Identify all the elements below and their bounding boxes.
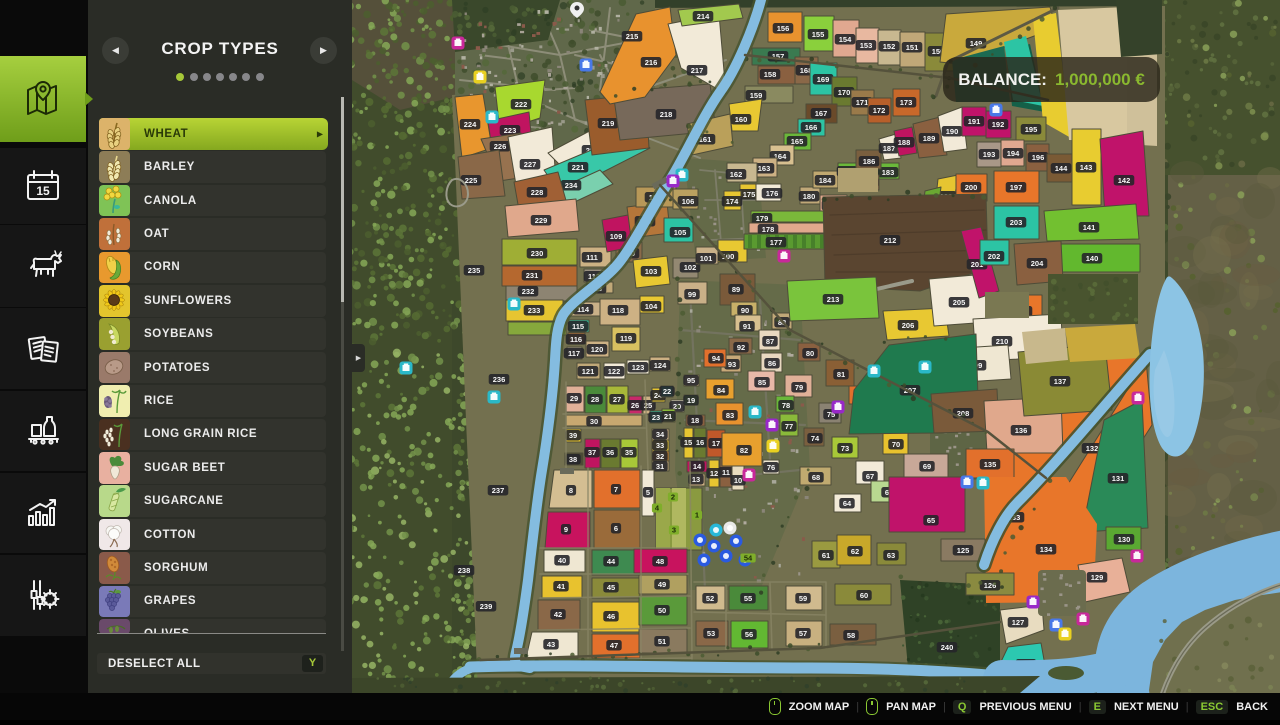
svg-text:194: 194 [1007,149,1020,158]
svg-text:177: 177 [770,238,783,247]
svg-text:15: 15 [684,438,692,447]
svg-text:124: 124 [654,361,667,370]
svg-text:55: 55 [744,594,752,603]
svg-text:73: 73 [841,444,849,453]
svg-text:240: 240 [941,643,954,652]
svg-text:129: 129 [1091,573,1104,582]
svg-text:143: 143 [1080,163,1093,172]
svg-text:221: 221 [572,163,585,172]
svg-text:13: 13 [692,475,700,484]
svg-text:134: 134 [1040,545,1053,554]
svg-text:37: 37 [588,448,596,457]
svg-text:170: 170 [838,88,851,97]
svg-text:28: 28 [591,395,599,404]
svg-text:43: 43 [547,640,555,649]
svg-text:224: 224 [464,120,477,129]
svg-text:94: 94 [712,354,721,363]
svg-text:38: 38 [569,455,577,464]
svg-text:44: 44 [607,557,616,566]
svg-text:215: 215 [626,32,639,41]
svg-text:176: 176 [766,189,779,198]
svg-text:169: 169 [817,75,830,84]
svg-text:2: 2 [671,493,675,502]
svg-text:195: 195 [1025,125,1038,134]
svg-text:105: 105 [674,228,687,237]
svg-text:36: 36 [606,448,614,457]
svg-text:219: 219 [602,119,615,128]
svg-text:121: 121 [582,367,595,376]
svg-text:99: 99 [688,290,696,299]
svg-text:47: 47 [610,641,618,650]
svg-text:117: 117 [568,349,580,358]
svg-text:163: 163 [758,164,771,173]
svg-text:46: 46 [607,612,615,621]
svg-text:51: 51 [658,637,666,646]
svg-text:26: 26 [631,401,639,410]
svg-text:203: 203 [1010,218,1023,227]
svg-text:118: 118 [612,306,624,315]
svg-text:127: 127 [1012,618,1025,627]
svg-text:32: 32 [656,452,664,461]
svg-text:56: 56 [745,630,753,639]
svg-text:102: 102 [684,263,697,272]
svg-text:63: 63 [887,551,895,560]
svg-text:160: 160 [735,115,748,124]
svg-text:158: 158 [764,70,777,79]
svg-text:144: 144 [1055,164,1068,173]
svg-text:136: 136 [1015,426,1028,435]
svg-text:166: 166 [805,123,818,132]
svg-text:190: 190 [946,127,959,136]
svg-text:171: 171 [856,98,869,107]
svg-text:123: 123 [632,363,645,372]
svg-text:142: 142 [1118,176,1131,185]
svg-text:84: 84 [717,386,726,395]
svg-text:41: 41 [557,582,565,591]
svg-text:30: 30 [590,417,598,426]
svg-text:237: 237 [492,486,505,495]
svg-text:119: 119 [620,334,632,343]
svg-text:239: 239 [480,602,493,611]
svg-text:222: 222 [515,100,528,109]
svg-text:61: 61 [822,551,830,560]
svg-text:52: 52 [706,594,714,603]
svg-text:167: 167 [815,109,828,118]
svg-text:6: 6 [614,524,618,533]
svg-text:23: 23 [652,413,660,422]
svg-text:125: 125 [957,546,970,555]
svg-text:205: 205 [953,298,966,307]
svg-text:126: 126 [984,581,997,590]
svg-text:16: 16 [696,438,704,447]
svg-text:87: 87 [766,337,774,346]
svg-text:57: 57 [799,629,807,638]
svg-text:42: 42 [554,610,562,619]
svg-text:193: 193 [983,150,996,159]
svg-text:59: 59 [799,594,807,603]
svg-text:79: 79 [795,383,803,392]
svg-text:173: 173 [900,98,913,107]
svg-text:85: 85 [758,378,766,387]
svg-text:109: 109 [610,232,623,241]
svg-text:196: 196 [1032,153,1045,162]
svg-text:231: 231 [526,271,539,280]
svg-text:68: 68 [812,473,820,482]
svg-text:184: 184 [819,176,832,185]
svg-text:197: 197 [1010,183,1023,192]
svg-text:58: 58 [847,631,855,640]
svg-text:115: 115 [572,322,584,331]
svg-text:131: 131 [1112,474,1125,483]
svg-text:39: 39 [569,431,577,440]
svg-text:229: 229 [535,216,548,225]
svg-text:89: 89 [732,285,740,294]
svg-text:74: 74 [811,434,820,443]
svg-text:81: 81 [837,370,845,379]
svg-text:154: 154 [839,35,852,44]
svg-text:76: 76 [767,463,775,472]
svg-text:235: 235 [468,266,481,275]
svg-text:116: 116 [570,335,582,344]
svg-text:1: 1 [695,511,699,520]
svg-text:218: 218 [660,110,673,119]
svg-text:11: 11 [722,468,730,477]
svg-text:31: 31 [656,462,664,471]
svg-text:162: 162 [730,170,743,179]
svg-text:18: 18 [691,416,699,425]
svg-text:155: 155 [812,30,825,39]
svg-text:86: 86 [768,359,776,368]
svg-text:122: 122 [608,367,621,376]
svg-text:29: 29 [570,394,578,403]
svg-text:21: 21 [664,412,672,421]
svg-text:49: 49 [658,580,666,589]
svg-text:78: 78 [782,401,790,410]
svg-text:69: 69 [923,462,931,471]
svg-text:228: 228 [531,188,544,197]
svg-text:152: 152 [883,42,896,51]
svg-text:27: 27 [613,395,621,404]
svg-text:137: 137 [1054,377,1067,386]
svg-text:179: 179 [756,214,769,223]
svg-text:153: 153 [860,41,873,50]
svg-text:186: 186 [863,157,876,166]
svg-text:17: 17 [712,439,720,448]
svg-text:223: 223 [504,126,517,135]
svg-text:22: 22 [663,387,671,396]
svg-text:200: 200 [965,183,978,192]
svg-text:3: 3 [672,526,676,535]
svg-text:187: 187 [883,144,896,153]
svg-text:192: 192 [992,120,1005,129]
svg-text:62: 62 [851,547,859,556]
svg-text:82: 82 [740,446,748,455]
svg-text:175: 175 [743,190,756,199]
svg-text:101: 101 [700,254,713,263]
svg-text:204: 204 [1031,259,1044,268]
svg-text:236: 236 [493,375,506,384]
svg-text:93: 93 [728,360,736,369]
svg-text:213: 213 [827,295,840,304]
svg-text:120: 120 [591,345,604,354]
svg-text:174: 174 [726,197,739,206]
svg-text:15: 15 [36,184,50,198]
svg-text:77: 77 [785,422,793,431]
svg-text:95: 95 [687,376,695,385]
svg-text:210: 210 [996,337,1009,346]
svg-text:217: 217 [691,66,704,75]
svg-text:60: 60 [860,591,868,600]
svg-text:35: 35 [625,448,633,457]
svg-text:212: 212 [884,236,897,245]
svg-text:130: 130 [1118,535,1131,544]
svg-text:53: 53 [707,629,715,638]
svg-text:45: 45 [607,583,615,592]
svg-text:48: 48 [656,557,664,566]
svg-text:165: 165 [791,137,804,146]
svg-text:159: 159 [750,91,763,100]
svg-text:227: 227 [524,160,537,169]
svg-text:202: 202 [988,252,1001,261]
svg-text:156: 156 [777,24,790,33]
svg-text:83: 83 [726,411,734,420]
svg-text:151: 151 [906,43,919,52]
svg-text:34: 34 [656,430,665,439]
svg-text:232: 232 [522,287,535,296]
svg-text:12: 12 [710,469,718,478]
svg-text:216: 216 [645,58,658,67]
svg-text:33: 33 [656,441,664,450]
svg-text:50: 50 [658,606,666,615]
svg-text:183: 183 [882,168,895,177]
svg-text:140: 140 [1086,254,1099,263]
svg-text:226: 226 [494,142,507,151]
svg-text:19: 19 [687,396,695,405]
svg-text:70: 70 [892,440,900,449]
svg-text:206: 206 [902,321,915,330]
svg-text:65: 65 [927,516,935,525]
svg-text:104: 104 [645,302,658,311]
svg-text:238: 238 [458,566,471,575]
svg-text:54: 54 [744,554,753,563]
svg-text:233: 233 [528,306,541,315]
svg-text:91: 91 [743,322,751,331]
svg-text:67: 67 [866,472,874,481]
svg-text:230: 230 [531,249,544,258]
svg-text:14: 14 [693,462,702,471]
svg-text:5: 5 [646,488,650,497]
svg-text:132: 132 [1086,444,1099,453]
svg-text:40: 40 [558,556,566,565]
svg-text:64: 64 [843,499,852,508]
svg-text:8: 8 [569,486,573,495]
svg-text:191: 191 [968,117,981,126]
svg-text:90: 90 [741,306,749,315]
svg-text:92: 92 [737,343,745,352]
svg-text:10: 10 [734,476,742,485]
svg-text:172: 172 [873,106,886,115]
svg-text:7: 7 [614,485,618,494]
svg-text:141: 141 [1083,223,1096,232]
svg-text:111: 111 [586,253,598,262]
svg-text:9: 9 [564,525,568,534]
svg-text:103: 103 [645,267,658,276]
svg-text:188: 188 [898,138,911,147]
svg-text:178: 178 [762,225,775,234]
svg-text:225: 225 [465,176,478,185]
svg-text:106: 106 [682,197,695,206]
svg-text:80: 80 [806,349,814,358]
svg-text:214: 214 [697,12,710,21]
svg-text:234: 234 [565,181,578,190]
svg-text:135: 135 [984,460,997,469]
svg-text:189: 189 [923,134,936,143]
svg-text:180: 180 [803,192,816,201]
